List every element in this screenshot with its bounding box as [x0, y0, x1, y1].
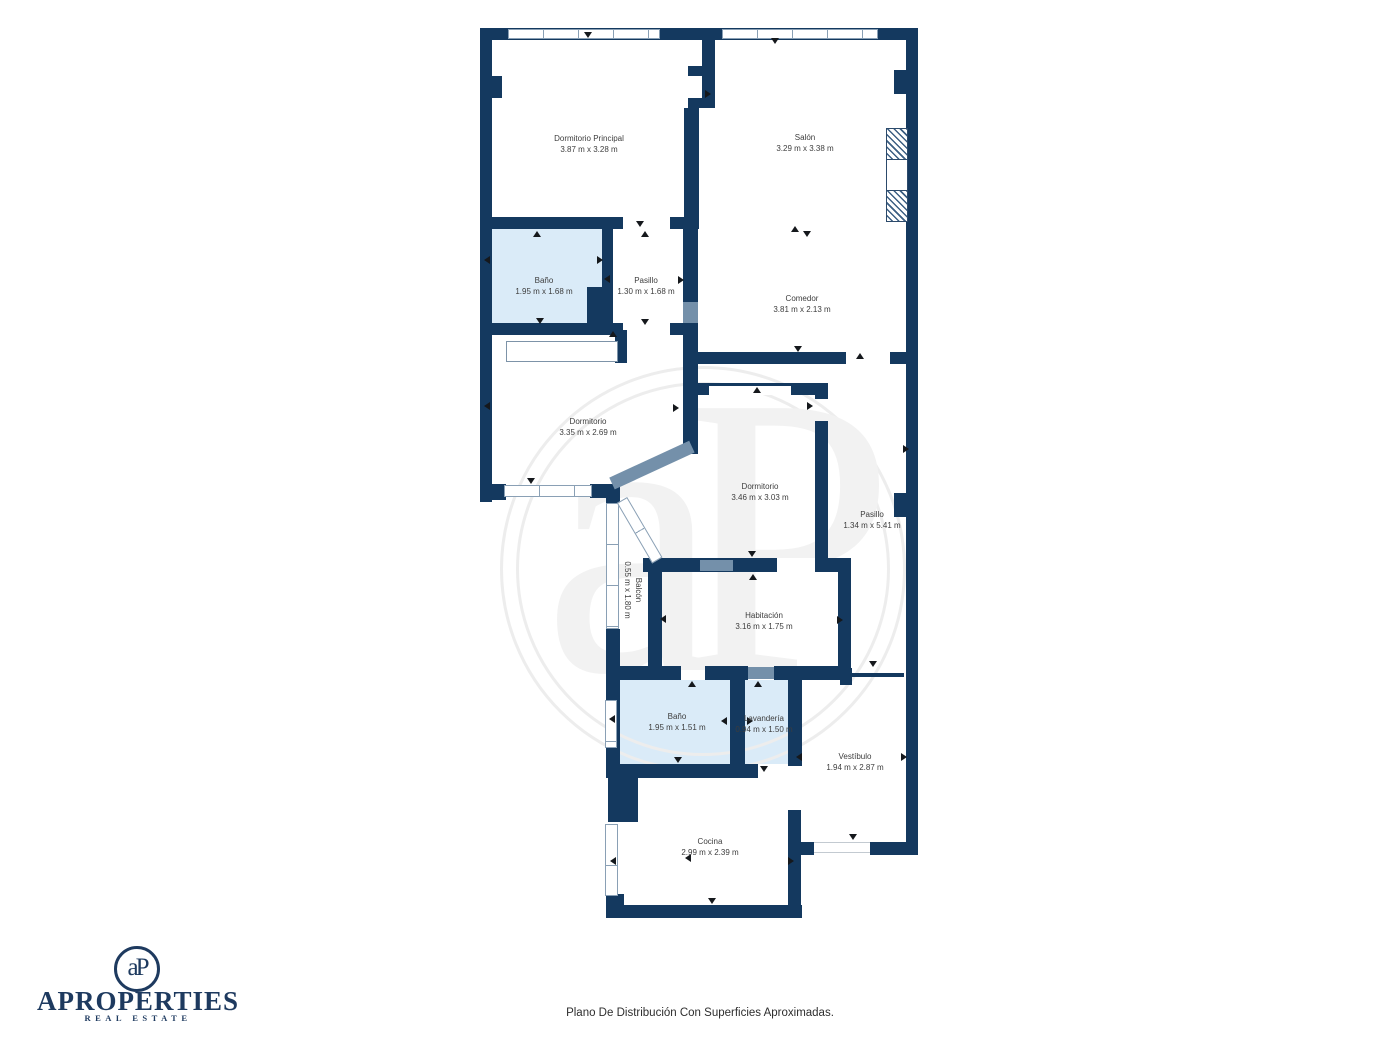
- door-marker-icon: [597, 256, 603, 264]
- door-marker-icon: [536, 318, 544, 324]
- wall-segment: [800, 673, 904, 677]
- room-dimensions: 0.55 m x 1.80 m: [622, 561, 633, 618]
- room-name: Balcón: [633, 561, 644, 618]
- room-label: Vestíbulo1.94 m x 2.87 m: [826, 751, 883, 773]
- wall-segment: [648, 666, 681, 680]
- wall-segment: [748, 667, 774, 679]
- door-marker-icon: [673, 404, 679, 412]
- room-label: Dormitorio3.46 m x 3.03 m: [731, 481, 788, 503]
- plan-caption: Plano De Distribución Con Superficies Ap…: [450, 1007, 950, 1019]
- room-label: Lavandería0.94 m x 1.50 m: [735, 713, 792, 735]
- door-marker-icon: [721, 717, 727, 725]
- door-marker-icon: [484, 402, 490, 410]
- wall-segment: [480, 323, 615, 335]
- wall-segment: [480, 484, 506, 500]
- door-marker-icon: [796, 753, 802, 761]
- wall-segment: [608, 766, 638, 822]
- room-name: Baño: [515, 275, 572, 286]
- room-dimensions: 3.16 m x 1.75 m: [735, 621, 792, 632]
- wall-segment: [815, 383, 828, 399]
- wall-segment: [705, 666, 748, 680]
- room-label: Dormitorio Principal3.87 m x 3.28 m: [554, 133, 624, 155]
- wall-segment: [890, 352, 918, 364]
- brand-tagline: REAL ESTATE: [14, 1013, 262, 1023]
- window: [504, 485, 592, 497]
- wall-segment: [670, 217, 688, 229]
- wall-segment: [815, 421, 828, 558]
- wall-segment: [643, 558, 851, 572]
- room-name: Dormitorio: [731, 481, 788, 492]
- wall-segment: [788, 842, 814, 855]
- wall-segment: [688, 66, 704, 76]
- room-name: Salón: [776, 132, 833, 143]
- room-dimensions: 3.35 m x 2.69 m: [559, 427, 616, 438]
- door-marker-icon: [753, 387, 761, 393]
- room-dimensions: 3.87 m x 3.28 m: [554, 144, 624, 155]
- wall-opening: [777, 558, 815, 572]
- door-marker-icon: [807, 402, 813, 410]
- room-name: Cocina: [681, 836, 738, 847]
- door-marker-icon: [708, 898, 716, 904]
- wall-segment: [688, 352, 846, 364]
- room-dimensions: 1.30 m x 1.68 m: [617, 286, 674, 297]
- door-marker-icon: [609, 331, 617, 337]
- door-marker-icon: [584, 32, 592, 38]
- wall-segment: [683, 229, 698, 302]
- wall-segment: [700, 560, 733, 571]
- wall-segment: [894, 70, 906, 94]
- wall-segment: [606, 666, 650, 680]
- wall-segment: [606, 905, 802, 918]
- room-name: Baño: [648, 711, 705, 722]
- door-marker-icon: [748, 551, 756, 557]
- door-marker-icon: [641, 231, 649, 237]
- room-dimensions: 3.81 m x 2.13 m: [773, 304, 830, 315]
- room-label: Baño1.95 m x 1.68 m: [515, 275, 572, 297]
- room-name: Pasillo: [617, 275, 674, 286]
- door-marker-icon: [604, 275, 610, 283]
- brand-monogram-text: aP: [128, 954, 147, 982]
- door-marker-icon: [749, 574, 757, 580]
- wall-segment: [688, 98, 704, 108]
- door-marker-icon: [903, 445, 909, 453]
- wall-segment: [870, 842, 918, 855]
- closet-niche: [506, 341, 618, 362]
- room-label: Habitación3.16 m x 1.75 m: [735, 610, 792, 632]
- door-marker-icon: [754, 681, 762, 687]
- door-marker-icon: [856, 353, 864, 359]
- door-marker-icon: [688, 681, 696, 687]
- door-marker-icon: [869, 661, 877, 667]
- door-marker-icon: [849, 834, 857, 840]
- wall-segment: [684, 108, 699, 229]
- window: [606, 503, 619, 629]
- door-marker-icon: [660, 615, 666, 623]
- wall-segment: [683, 362, 698, 454]
- door-marker-icon: [527, 478, 535, 484]
- room-name: Habitación: [735, 610, 792, 621]
- room-dimensions: 3.46 m x 3.03 m: [731, 492, 788, 503]
- wall-segment: [587, 287, 613, 323]
- room-name: Pasillo: [843, 509, 900, 520]
- window: [722, 29, 878, 39]
- door-marker-icon: [609, 715, 615, 723]
- door-marker-icon: [803, 231, 811, 237]
- room-label: Pasillo1.30 m x 1.68 m: [617, 275, 674, 297]
- room-dimensions: 1.94 m x 2.87 m: [826, 762, 883, 773]
- door-marker-icon: [788, 857, 794, 865]
- room-name: Lavandería: [735, 713, 792, 724]
- room-name: Comedor: [773, 293, 830, 304]
- wall-segment: [480, 40, 492, 502]
- room-dimensions: 1.95 m x 1.68 m: [515, 286, 572, 297]
- room-dimensions: 3.29 m x 3.38 m: [776, 143, 833, 154]
- room-label: Salón3.29 m x 3.38 m: [776, 132, 833, 154]
- door-marker-icon: [610, 857, 616, 865]
- wall-segment: [480, 217, 623, 229]
- room-label: Comedor3.81 m x 2.13 m: [773, 293, 830, 315]
- entrance-door-gap: [814, 842, 870, 853]
- door-marker-icon: [533, 231, 541, 237]
- hatch-bottom: [887, 191, 907, 221]
- floorplan-canvas: aP Dormitorio Principal3.87 m x 3.28 mSa…: [0, 0, 1400, 1050]
- room-dimensions: 1.95 m x 1.51 m: [648, 722, 705, 733]
- door-marker-icon: [641, 319, 649, 325]
- hatch-top: [887, 129, 907, 159]
- room-label: Baño1.95 m x 1.51 m: [648, 711, 705, 733]
- hatch-middle-box: [887, 159, 907, 191]
- door-marker-icon: [705, 90, 711, 98]
- door-marker-icon: [791, 226, 799, 232]
- door-marker-icon: [484, 256, 490, 264]
- door-marker-icon: [760, 766, 768, 772]
- door-marker-icon: [636, 221, 644, 227]
- room-dimensions: 2.99 m x 2.39 m: [681, 847, 738, 858]
- room-name: Vestíbulo: [826, 751, 883, 762]
- room-label: Balcón0.55 m x 1.80 m: [622, 561, 644, 618]
- room-label: Pasillo1.34 m x 5.41 m: [843, 509, 900, 531]
- door-marker-icon: [771, 38, 779, 44]
- door-marker-icon: [678, 276, 684, 284]
- door-marker-icon: [794, 346, 802, 352]
- room-dimensions: 0.94 m x 1.50 m: [735, 724, 792, 735]
- door-marker-icon: [837, 616, 843, 624]
- window: [605, 700, 617, 748]
- fireplace-hatch: [886, 128, 908, 222]
- room-dimensions: 1.34 m x 5.41 m: [843, 520, 900, 531]
- door-marker-icon: [674, 757, 682, 763]
- wall-opening: [709, 386, 791, 395]
- wall-segment: [492, 76, 502, 98]
- room-label: Cocina2.99 m x 2.39 m: [681, 836, 738, 858]
- door-marker-icon: [901, 753, 907, 761]
- room-name: Dormitorio Principal: [554, 133, 624, 144]
- room-label: Dormitorio3.35 m x 2.69 m: [559, 416, 616, 438]
- room-name: Dormitorio: [559, 416, 616, 427]
